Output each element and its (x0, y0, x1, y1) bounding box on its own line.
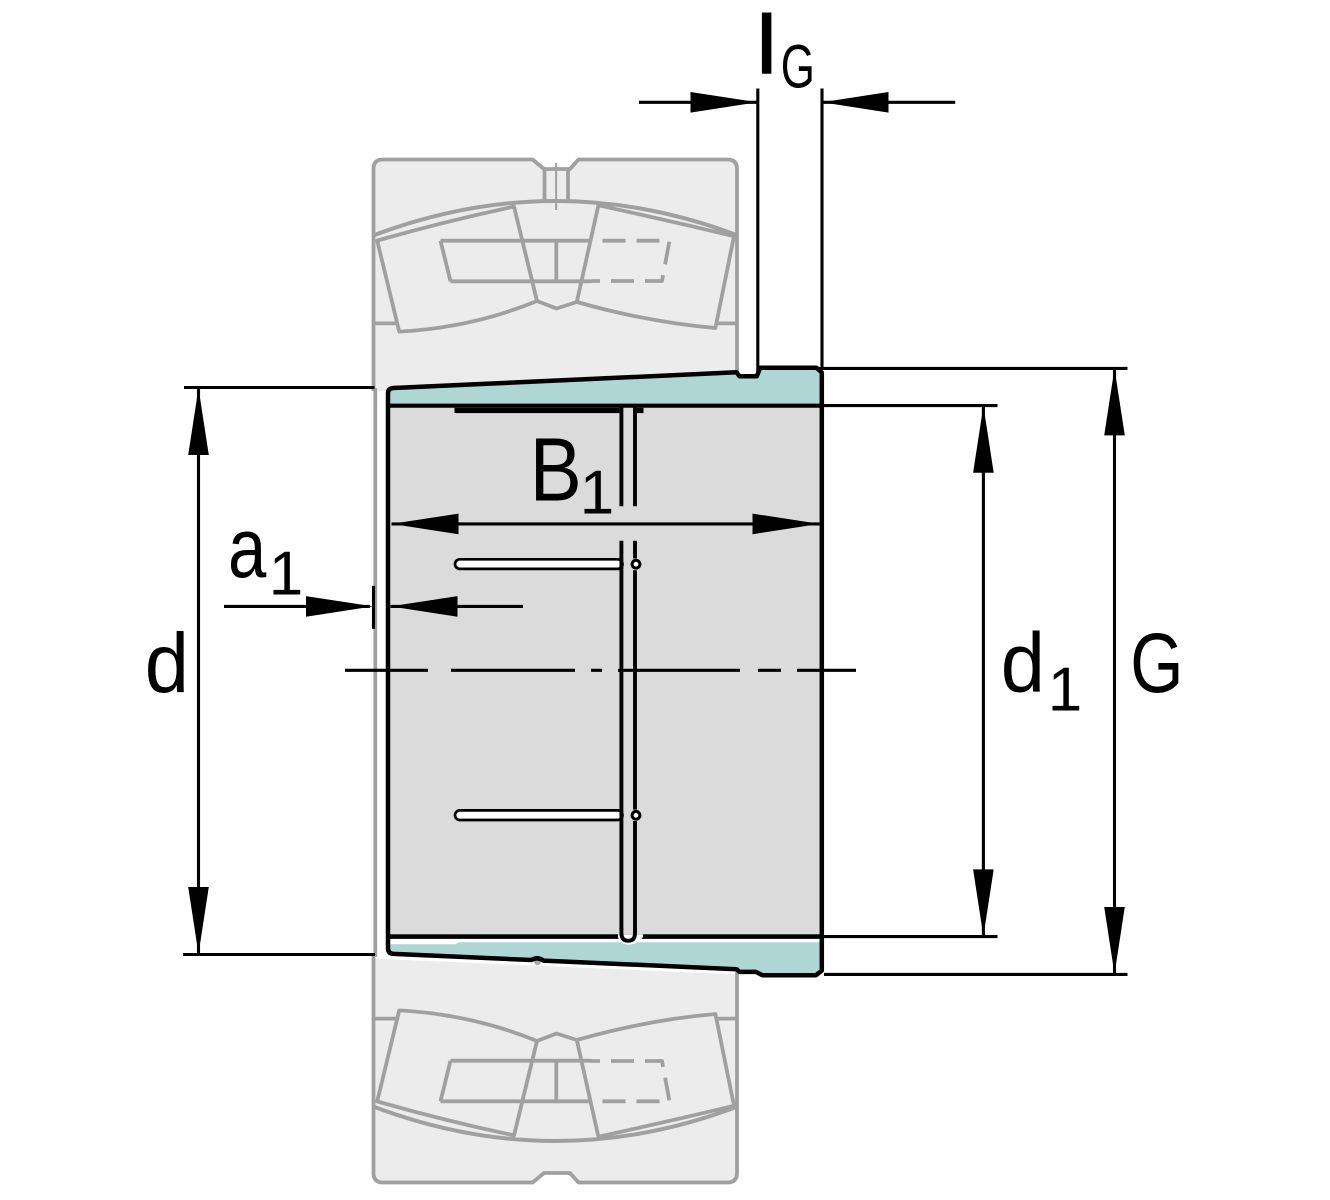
svg-text:d: d (145, 616, 189, 710)
svg-text:B: B (530, 421, 582, 521)
svg-text:a: a (228, 501, 267, 595)
svg-text:1: 1 (580, 459, 614, 528)
svg-text:1: 1 (269, 540, 303, 609)
svg-text:G: G (1130, 616, 1183, 710)
svg-text:l: l (755, 0, 779, 92)
svg-text:d: d (1001, 616, 1045, 710)
svg-text:1: 1 (1048, 656, 1082, 725)
svg-text:G: G (781, 33, 815, 101)
